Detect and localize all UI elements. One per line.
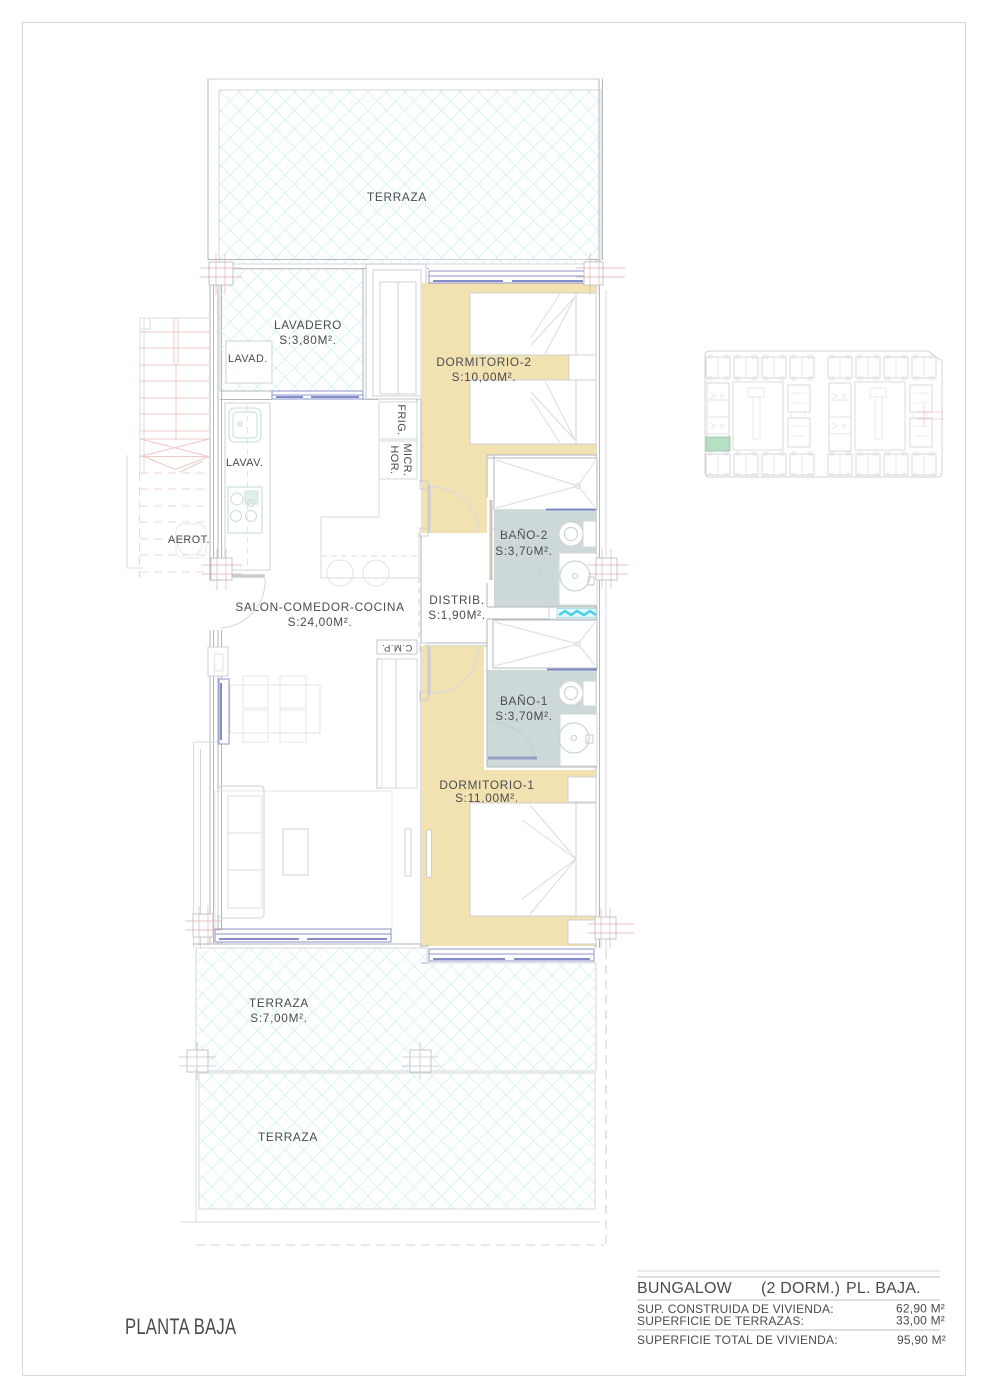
svg-text:S:1,90M².: S:1,90M². [428, 608, 485, 622]
svg-text:LAVADERO: LAVADERO [274, 318, 342, 332]
svg-text:S:3,70M².: S:3,70M². [495, 544, 552, 558]
svg-text:S:7,00M².: S:7,00M². [250, 1011, 307, 1025]
svg-text:AEROT.: AEROT. [168, 534, 210, 546]
svg-text:MICR.: MICR. [401, 443, 413, 476]
svg-text:DORMITORIO-1: DORMITORIO-1 [439, 778, 534, 792]
svg-text:LAVAD.: LAVAD. [228, 353, 268, 365]
svg-text:TERRAZA: TERRAZA [258, 1130, 318, 1144]
svg-text:BUNGALOW: BUNGALOW [637, 1280, 733, 1297]
svg-text:S:3,80M².: S:3,80M². [279, 333, 336, 347]
svg-text:LAVAV.: LAVAV. [226, 457, 263, 469]
svg-text:TERRAZA: TERRAZA [367, 190, 427, 204]
svg-text:PL. BAJA.: PL. BAJA. [846, 1280, 921, 1297]
svg-text:(2 DORM.): (2 DORM.) [761, 1280, 840, 1297]
svg-text:DISTRIB.: DISTRIB. [429, 593, 484, 607]
svg-text:HOR.: HOR. [388, 446, 400, 475]
svg-text:95,90 M²: 95,90 M² [897, 1333, 946, 1347]
svg-text:DORMITORIO-2: DORMITORIO-2 [436, 355, 531, 369]
svg-text:S:10,00M².: S:10,00M². [452, 370, 517, 384]
svg-text:SUPERFICIE TOTAL DE VIVIENDA:: SUPERFICIE TOTAL DE VIVIENDA: [637, 1333, 838, 1347]
svg-text:BAÑO-1: BAÑO-1 [500, 694, 548, 708]
svg-text:FRIG.: FRIG. [395, 404, 407, 435]
svg-text:C.M.P.: C.M.P. [382, 642, 413, 653]
svg-text:TERRAZA: TERRAZA [249, 996, 309, 1010]
svg-text:S:3,70M².: S:3,70M². [495, 709, 552, 723]
svg-text:PLANTA BAJA: PLANTA BAJA [125, 1315, 237, 1340]
svg-text:S:24,00M².: S:24,00M². [288, 615, 353, 629]
svg-text:33,00 M²: 33,00 M² [896, 1314, 945, 1328]
svg-text:BAÑO-2: BAÑO-2 [500, 528, 548, 542]
svg-text:SUPERFICIE DE TERRAZAS:: SUPERFICIE DE TERRAZAS: [637, 1314, 804, 1328]
